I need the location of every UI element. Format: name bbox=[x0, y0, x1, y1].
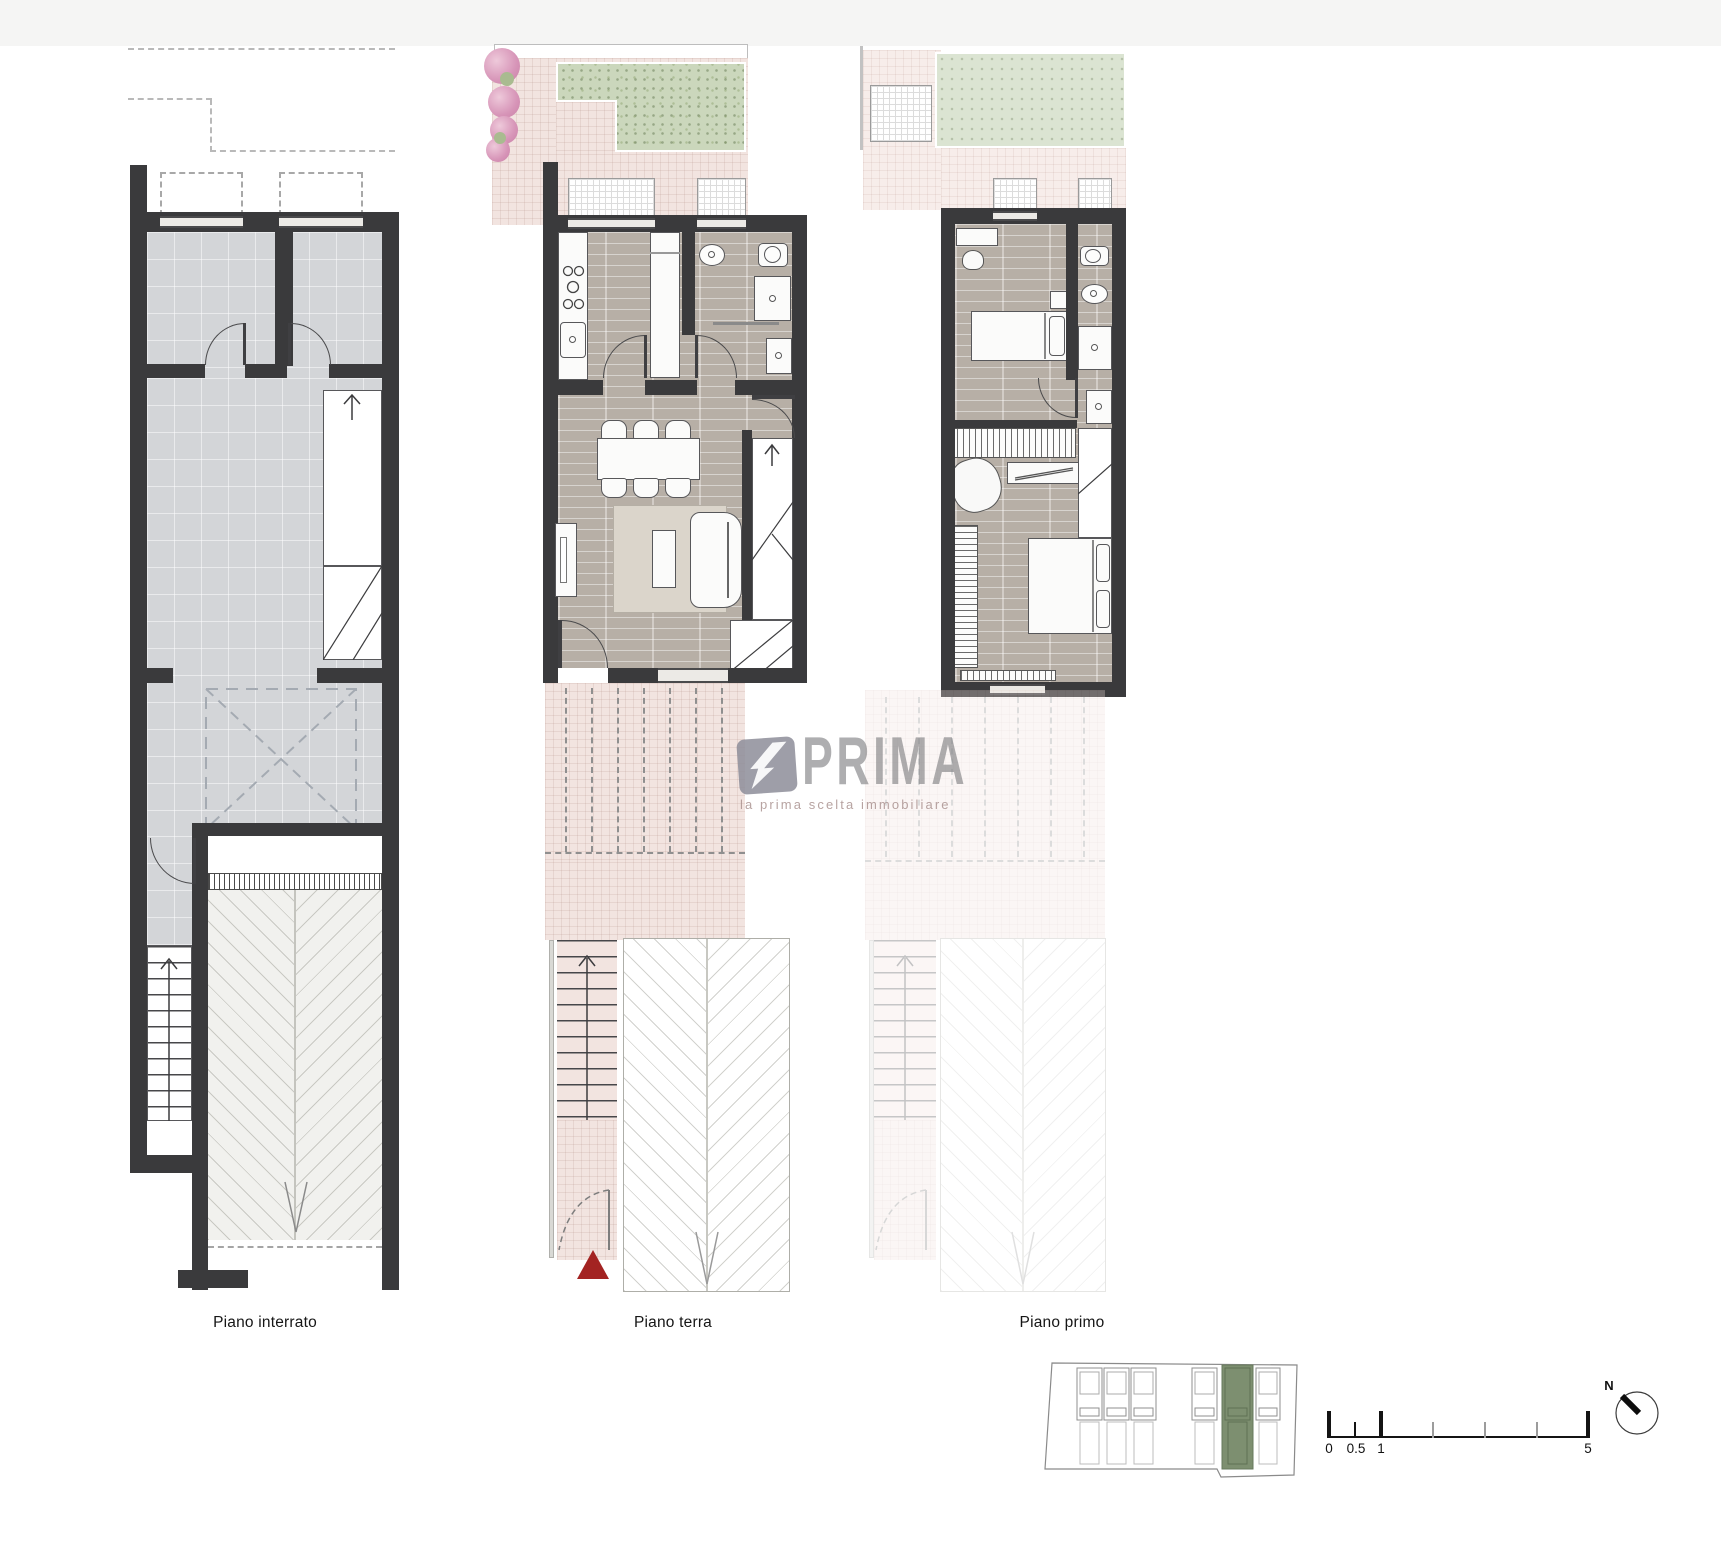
label-piano-primo: Piano primo bbox=[992, 1314, 1132, 1332]
north-label: N bbox=[1601, 1378, 1617, 1393]
stair-arrow-icon bbox=[874, 940, 936, 1126]
pergola-beam-line bbox=[1017, 697, 1019, 857]
scale-label-5: 5 bbox=[1581, 1441, 1595, 1456]
scale-label-1: 1 bbox=[1374, 1441, 1388, 1456]
highlighted-unit bbox=[1222, 1365, 1253, 1469]
ramp-down-arrow-icon bbox=[1008, 1228, 1038, 1288]
pergola-beam-line bbox=[918, 697, 920, 857]
site-key-plan bbox=[1040, 1356, 1302, 1482]
pergola-beam-line bbox=[1083, 697, 1085, 857]
scale-tick-gray bbox=[1536, 1422, 1538, 1438]
scale-tick-major bbox=[1327, 1411, 1331, 1438]
pergola-beam-line bbox=[984, 697, 986, 857]
floorplan-sheet: PRIMA la prima scelta immobiliare Piano … bbox=[0, 0, 1721, 1557]
label-piano-terra: Piano terra bbox=[603, 1314, 743, 1332]
north-compass-icon bbox=[1612, 1374, 1668, 1438]
scale-tick-major bbox=[1586, 1411, 1590, 1438]
label-piano-interrato: Piano interrato bbox=[195, 1314, 335, 1332]
scale-label-0: 0 bbox=[1322, 1441, 1336, 1456]
pergola-beam-line bbox=[885, 697, 887, 857]
pergola-beam-line bbox=[1050, 697, 1052, 857]
ghost-court bbox=[865, 868, 1105, 940]
scale-tick-major bbox=[1379, 1411, 1383, 1438]
gate-door-arc bbox=[872, 1188, 932, 1254]
scale-tick-gray bbox=[1432, 1422, 1434, 1438]
pergola-beam-line bbox=[951, 697, 953, 857]
scale-tick-gray bbox=[1484, 1422, 1486, 1438]
scale-label-05: 0.5 bbox=[1342, 1441, 1370, 1456]
scale-tick-minor bbox=[1354, 1422, 1356, 1438]
pergola-edge-dash bbox=[865, 860, 1105, 862]
scale-baseline bbox=[1328, 1436, 1590, 1438]
